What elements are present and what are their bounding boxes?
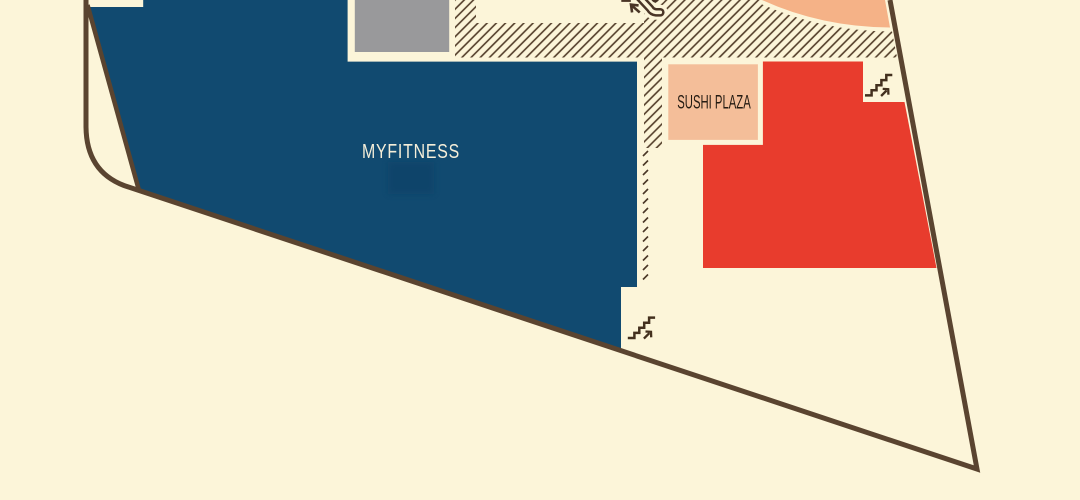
svg-text:SUSHI PLAZA: SUSHI PLAZA [677, 93, 751, 114]
svg-text:MYFITNESS: MYFITNESS [362, 141, 460, 163]
